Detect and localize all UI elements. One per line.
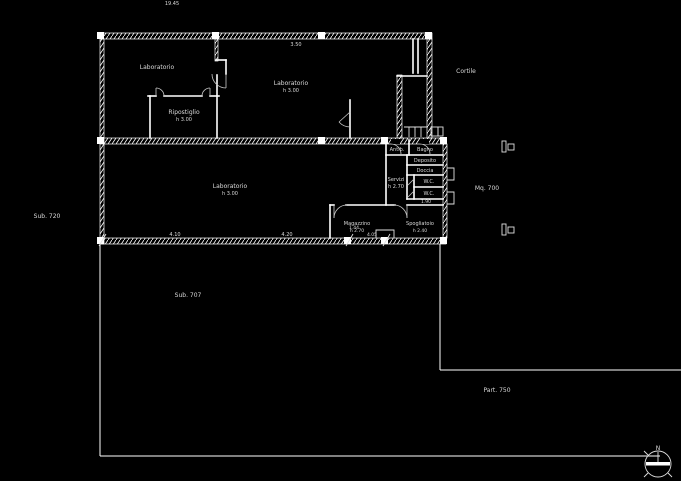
site-label-mq: Mq. 700 bbox=[475, 185, 499, 192]
lot-boundary bbox=[100, 243, 681, 456]
room-height-spogliatoio: h 2.40 bbox=[413, 228, 427, 234]
room-label-bagno: Bagno bbox=[417, 147, 433, 153]
room-label-wc1: W.C. bbox=[423, 179, 434, 185]
site-label-part-right: Part. 750 bbox=[483, 387, 510, 394]
section-markers bbox=[502, 141, 514, 235]
site-label-cortile: Cortile bbox=[456, 68, 476, 75]
room-label-antibagno: Antib. bbox=[390, 147, 405, 153]
room-height-ripostiglio: h 3.00 bbox=[176, 117, 192, 123]
compass-rose: N bbox=[644, 445, 672, 477]
room-label-servizi: Servizi bbox=[388, 177, 405, 183]
dim-bottom-1: 4.10 bbox=[169, 232, 180, 238]
compass-north-label: N bbox=[656, 445, 661, 452]
dim-top: 19.45 bbox=[165, 1, 179, 7]
room-label-laboratorio-nw: Laboratorio bbox=[140, 64, 175, 71]
window-symbols bbox=[447, 168, 454, 204]
site-labels: Cortile Mq. 700 Sub. 720 Sub. 707 Part. … bbox=[34, 68, 511, 394]
site-label-sub-left: Sub. 720 bbox=[34, 213, 61, 220]
room-label-magazzino: Magazzino bbox=[344, 221, 370, 227]
room-label-laboratorio-ne: Laboratorio bbox=[274, 80, 309, 87]
room-height-magazzino: h 2.70 bbox=[350, 228, 364, 234]
stair-steps bbox=[404, 127, 443, 137]
room-height-laboratorio-main: h 3.00 bbox=[222, 191, 238, 197]
floor-plan-canvas: N 19.45 3.50 4.10 4.20 1.44 4.05 1.90 La… bbox=[0, 0, 681, 481]
room-labels: Laboratorio Laboratorio h 3.00 Ripostigl… bbox=[140, 64, 436, 234]
room-label-wc2: W.C. bbox=[423, 191, 434, 197]
room-label-spogliatoio: Spogliatoio bbox=[406, 221, 434, 227]
room-label-doccia: Doccia bbox=[417, 168, 434, 174]
site-label-sub-yard: Sub. 707 bbox=[175, 292, 202, 299]
room-label-laboratorio-main: Laboratorio bbox=[213, 183, 248, 190]
floor-plan-drawing: N 19.45 3.50 4.10 4.20 1.44 4.05 1.90 La… bbox=[0, 0, 681, 481]
room-height-laboratorio-ne: h 3.00 bbox=[283, 88, 299, 94]
dim-cluster: 1.90 bbox=[421, 199, 431, 205]
room-label-ripostiglio: Ripostiglio bbox=[168, 109, 200, 116]
dim-top-wall: 3.50 bbox=[290, 42, 301, 48]
dim-bottom-2: 4.20 bbox=[281, 232, 292, 238]
dim-bottom-4: 4.05 bbox=[367, 232, 377, 238]
room-height-servizi: h 2.70 bbox=[388, 184, 404, 190]
room-label-deposito: Deposito bbox=[414, 158, 436, 164]
